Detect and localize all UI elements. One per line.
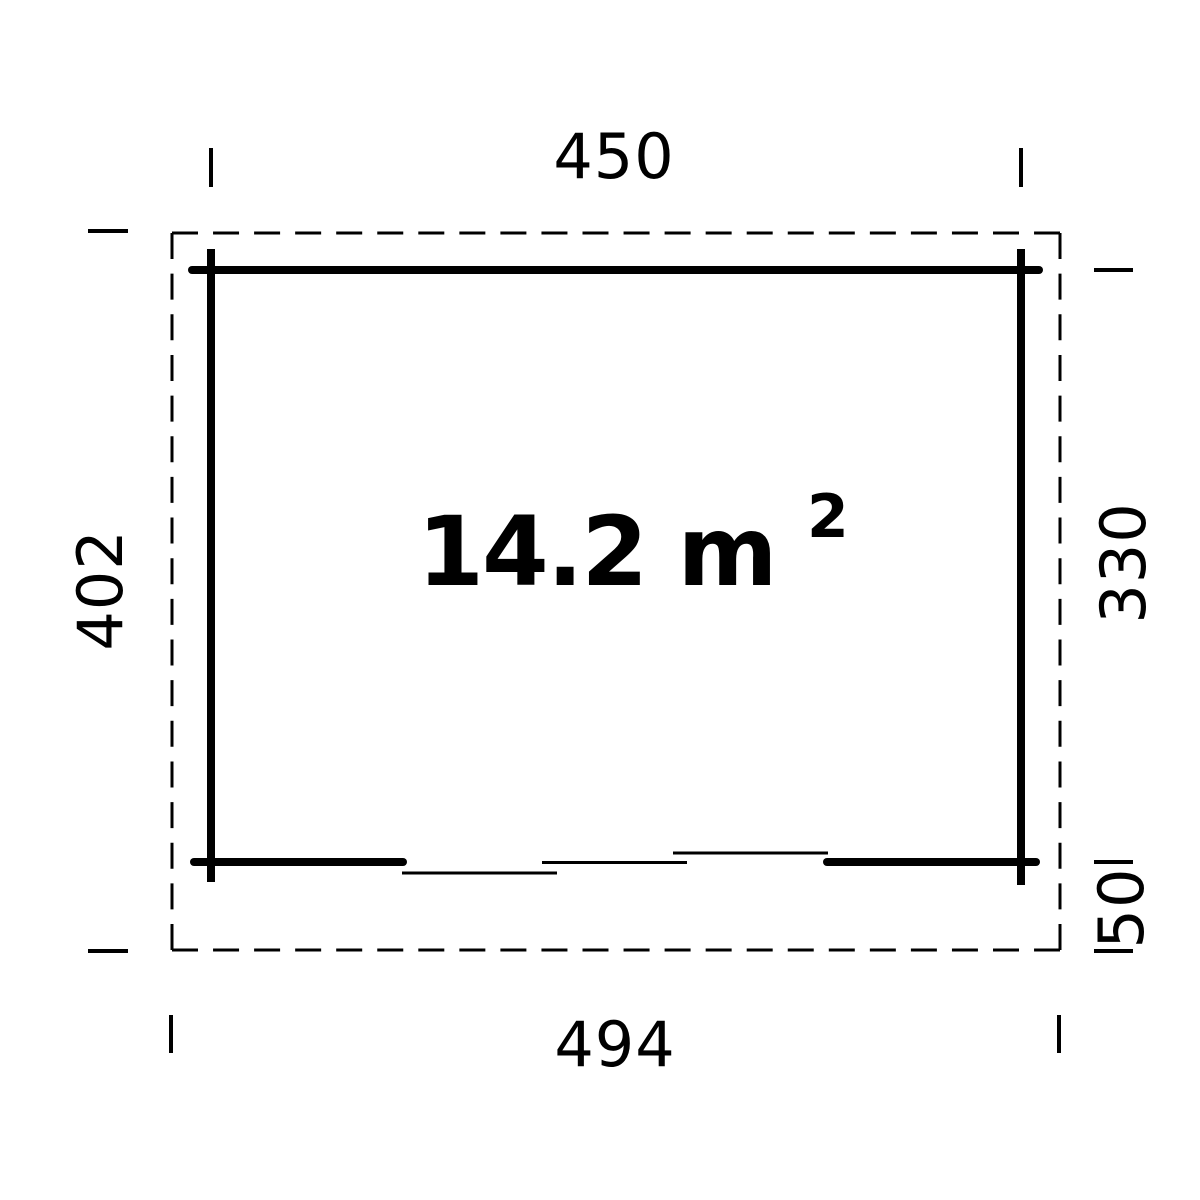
dim-label-top-width: 450 [553,120,674,193]
area-label: 14.2 m 2 [417,482,846,608]
dim-label-right-overhang: 50 [1085,868,1158,949]
floor-plan-page: 450 402 330 50 494 14.2 m 2 [0,0,1200,1200]
dim-label-bottom-width: 494 [554,1008,675,1081]
floor-plan-svg: 450 402 330 50 494 14.2 m 2 [0,0,1200,1200]
dim-label-right-wall-depth: 330 [1087,502,1160,623]
dim-label-left-depth: 402 [64,529,137,650]
area-superscript: 2 [807,482,847,552]
area-value: 14.2 m [417,496,775,608]
door-window-openings [402,853,828,873]
